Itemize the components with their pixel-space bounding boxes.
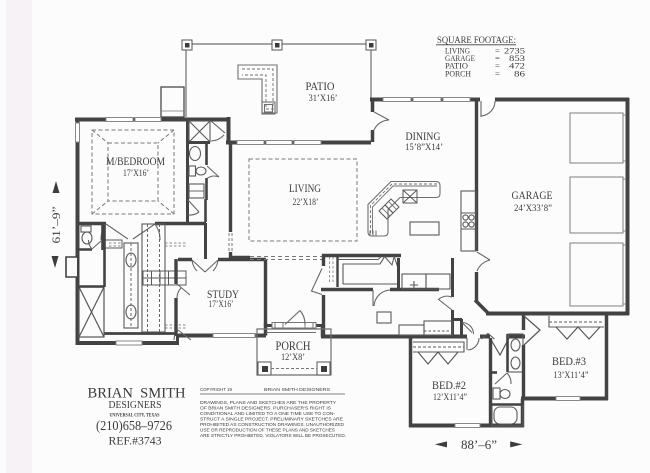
svg-text:PORCH: PORCH bbox=[445, 69, 471, 79]
svg-text:86: 86 bbox=[514, 69, 525, 79]
svg-text:STRUCT A SINGLE PROJECT. PREL: STRUCT A SINGLE PROJECT. PRELIMINARY SKE… bbox=[200, 417, 344, 423]
svg-text:24’X33’8”: 24’X33’8” bbox=[514, 203, 552, 213]
svg-text:DRAWINGS, PLANS AND SKETCHES A: DRAWINGS, PLANS AND SKETCHES ARE THE PRO… bbox=[200, 400, 337, 406]
svg-text:=: = bbox=[495, 69, 500, 79]
svg-text:13’X11’4”: 13’X11’4” bbox=[554, 370, 589, 380]
svg-text:CONDITIONAL AND LIMITED TO A O: CONDITIONAL AND LIMITED TO A ONE TIME US… bbox=[200, 411, 335, 417]
svg-text:BRIAN SMITH DESIGNERS: BRIAN SMITH DESIGNERS bbox=[264, 387, 331, 393]
svg-text:OF BRIAN SMITH DESIGNERS. PUR: OF BRIAN SMITH DESIGNERS. PURCHASER'S RI… bbox=[200, 406, 332, 412]
svg-text:61’–9”: 61’–9” bbox=[49, 207, 63, 244]
svg-text:15’8”X14’: 15’8”X14’ bbox=[405, 142, 443, 152]
svg-text:(210)658–9726: (210)658–9726 bbox=[96, 418, 172, 433]
svg-text:17’X16’: 17’X16’ bbox=[123, 168, 149, 178]
svg-text:PATIO: PATIO bbox=[306, 79, 335, 93]
svg-text:GARAGE: GARAGE bbox=[512, 188, 553, 202]
svg-text:BED.#3: BED.#3 bbox=[552, 354, 586, 368]
svg-text:LIVING: LIVING bbox=[289, 181, 321, 195]
svg-text:USE OR REPRODUCTION OF THESE P: USE OR REPRODUCTION OF THESE PLANS AND S… bbox=[200, 428, 336, 434]
svg-text:PORCH: PORCH bbox=[276, 338, 311, 353]
svg-text:DINING: DINING bbox=[406, 129, 441, 143]
svg-text:M/BEDROOM: M/BEDROOM bbox=[106, 154, 165, 168]
svg-text:31’X16’: 31’X16’ bbox=[309, 93, 338, 103]
svg-text:REF.#3743: REF.#3743 bbox=[109, 434, 162, 448]
svg-text:BED.#2: BED.#2 bbox=[432, 378, 466, 392]
svg-text:88’–6”: 88’–6” bbox=[461, 438, 497, 452]
svg-text:22’X18’: 22’X18’ bbox=[293, 197, 319, 207]
svg-text:PROHIBITED AS CONSTRUCTION DRA: PROHIBITED AS CONSTRUCTION DRAWINGS. UNA… bbox=[200, 422, 344, 428]
svg-text:DESIGNERS: DESIGNERS bbox=[109, 399, 162, 411]
svg-text:12’X8’: 12’X8’ bbox=[281, 352, 305, 362]
svg-text:COPYRIGHT 19: COPYRIGHT 19 bbox=[200, 387, 232, 393]
svg-text:17’X16’: 17’X16’ bbox=[209, 299, 234, 309]
svg-text:ARE STRICTLY PROHIBITED. VIOL: ARE STRICTLY PROHIBITED. VIOLATORS WILL … bbox=[200, 433, 346, 439]
svg-text:12’X11’4”: 12’X11’4” bbox=[433, 392, 467, 402]
